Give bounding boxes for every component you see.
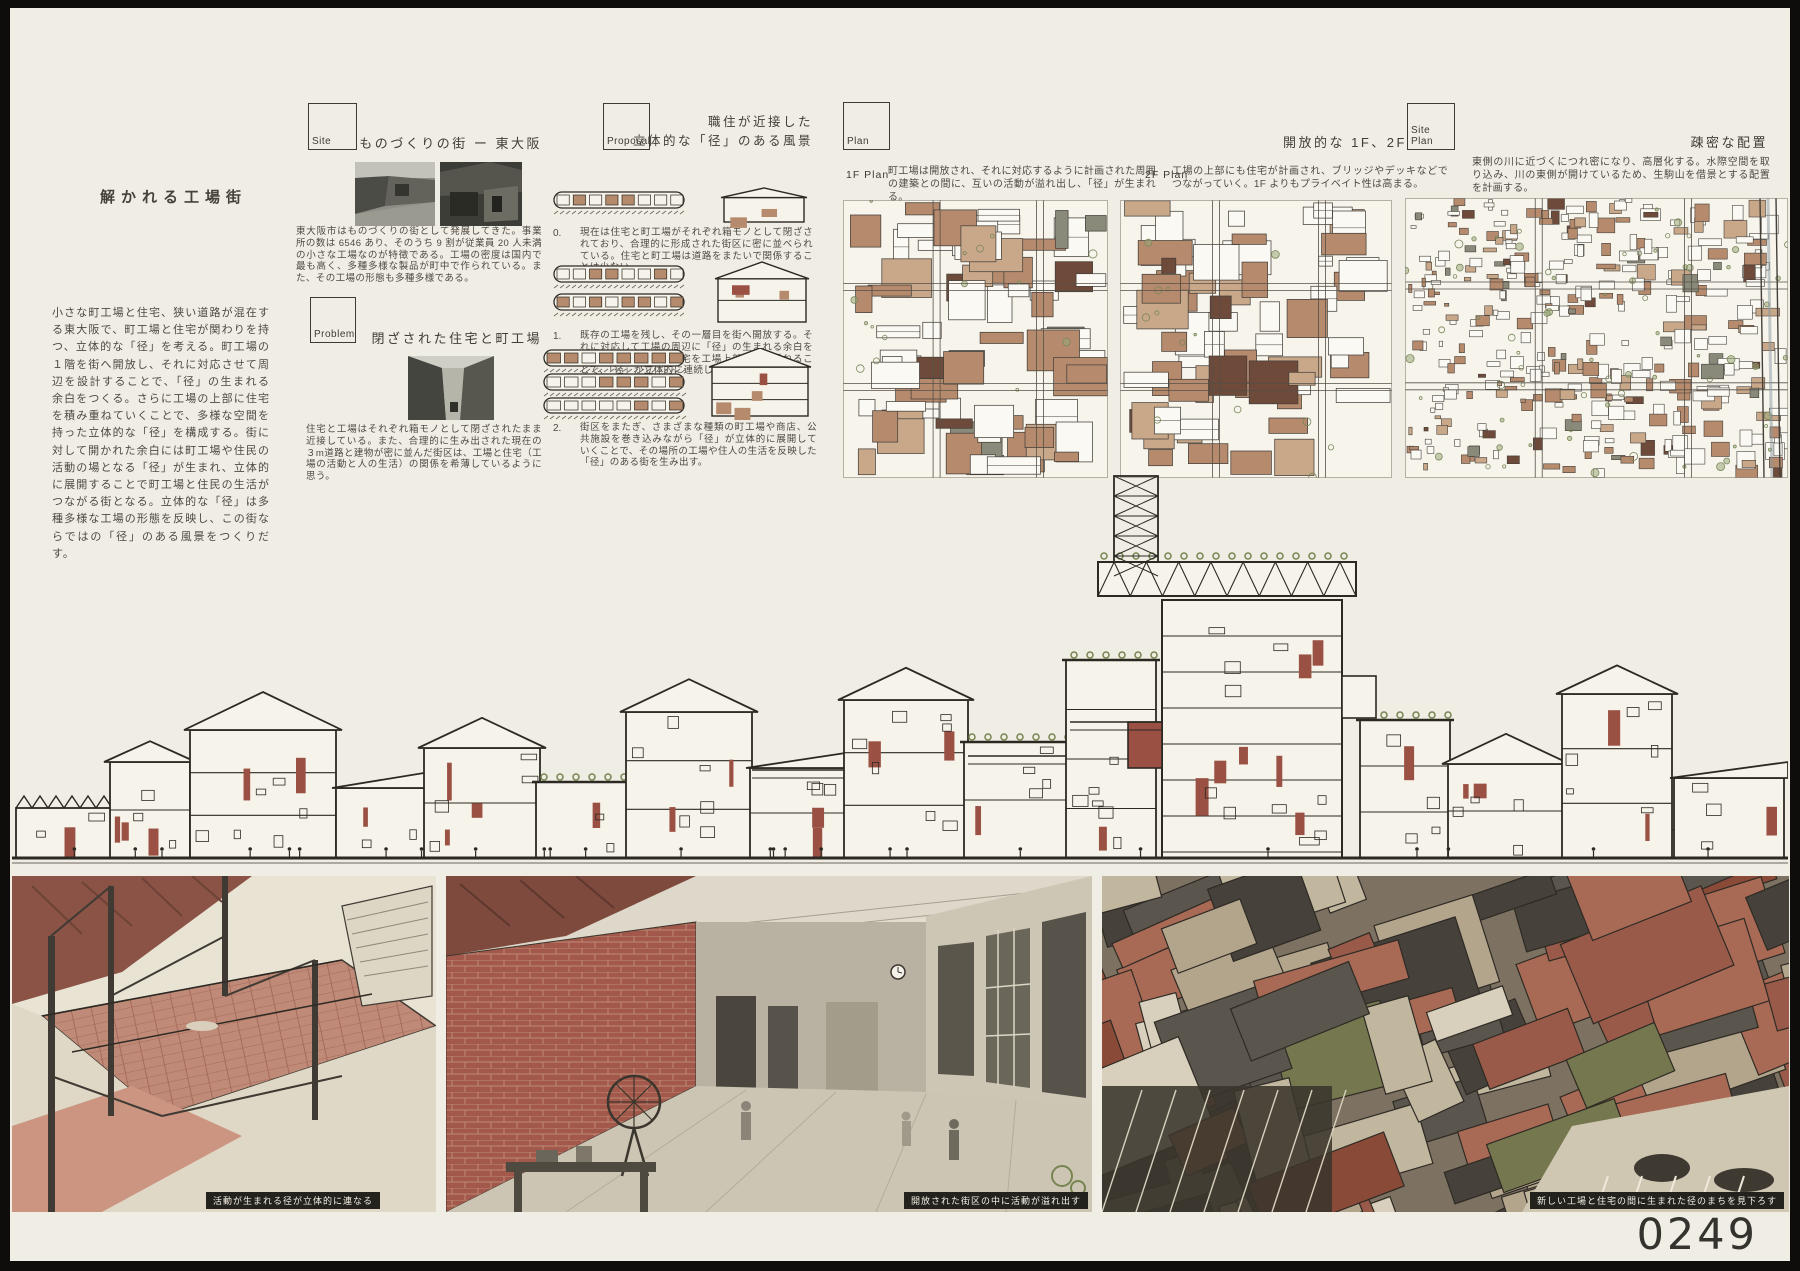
section-drawing	[12, 470, 1788, 866]
render-caption-3: 新しい工場と住宅の間に生まれた径のまちを見下ろす	[1530, 1192, 1784, 1209]
siteplan-label: Site Plan	[1411, 125, 1454, 147]
proposal-step-number-1: 1.	[553, 331, 561, 342]
siteplan-heading: 疎密な配置	[1600, 132, 1768, 151]
proposal-diagram-2	[540, 348, 820, 420]
site-photo-1	[355, 162, 435, 226]
site-photo-2	[440, 162, 522, 226]
presentation-board: 解かれる工場街 小さな町工場と住宅、狭い道路が混在する東大阪で、町工場と住宅が関…	[0, 0, 1800, 1271]
render-perspective-3	[1102, 876, 1789, 1212]
entry-number: 0249	[1637, 1210, 1758, 1260]
site-label: Site	[312, 136, 331, 147]
page-title: 解かれる工場街	[100, 186, 247, 207]
plan-1f-text: 町工場は開放され、それに対応するように計画された周囲の建築との間に、互いの活動が…	[888, 165, 1156, 205]
siteplan-map	[1405, 198, 1788, 478]
render-perspective-1	[12, 876, 436, 1212]
render-caption-1: 活動が生まれる径が立体的に連なる	[206, 1192, 380, 1209]
proposal-diagram-0	[548, 184, 818, 228]
proposal-step-number-2: 2.	[553, 423, 561, 434]
problem-photo	[408, 356, 494, 420]
proposal-step-text-2: 街区をまたぎ、さまざまな種類の町工場や商店、公共施設を巻き込みながら「径」が立体…	[580, 422, 817, 469]
proposal-diagram-1	[548, 258, 818, 328]
plan-2f-drawing	[1120, 200, 1392, 478]
problem-heading: 閉ざされた住宅と町工場	[330, 328, 542, 347]
plan-1f-drawing	[843, 200, 1108, 478]
plan-1f-label: 1F Plan	[846, 169, 889, 181]
plan-label: Plan	[847, 136, 869, 147]
render-caption-2: 開放された街区の中に活動が溢れ出す	[904, 1192, 1088, 1209]
render-perspective-2	[446, 876, 1092, 1212]
proposal-step-number-0: 0.	[553, 228, 561, 239]
site-body: 東大阪市はものづくりの街として発展してきた。事業所の数は 6546 あり、そのう…	[296, 226, 542, 285]
proposal-heading-line2: 立体的な「径」のある風景	[601, 130, 813, 149]
plan-label-box: Plan	[843, 102, 890, 150]
site-heading: ものづくりの街 ー 東大阪	[330, 133, 542, 152]
plan-heading: 開放的な 1F、2F	[1283, 132, 1407, 151]
plan-2f-text: 工場の上部にも住宅が計画され、ブリッジやデッキなどでつながっていく。1F よりも…	[1172, 165, 1448, 191]
proposal-heading-line1: 職住が近接した	[601, 111, 813, 130]
siteplan-label-box: Site Plan	[1407, 103, 1455, 150]
siteplan-body: 東側の川に近づくにつれ密になり、高層化する。水際空間を取り込み、川の東側が開けて…	[1472, 156, 1770, 196]
